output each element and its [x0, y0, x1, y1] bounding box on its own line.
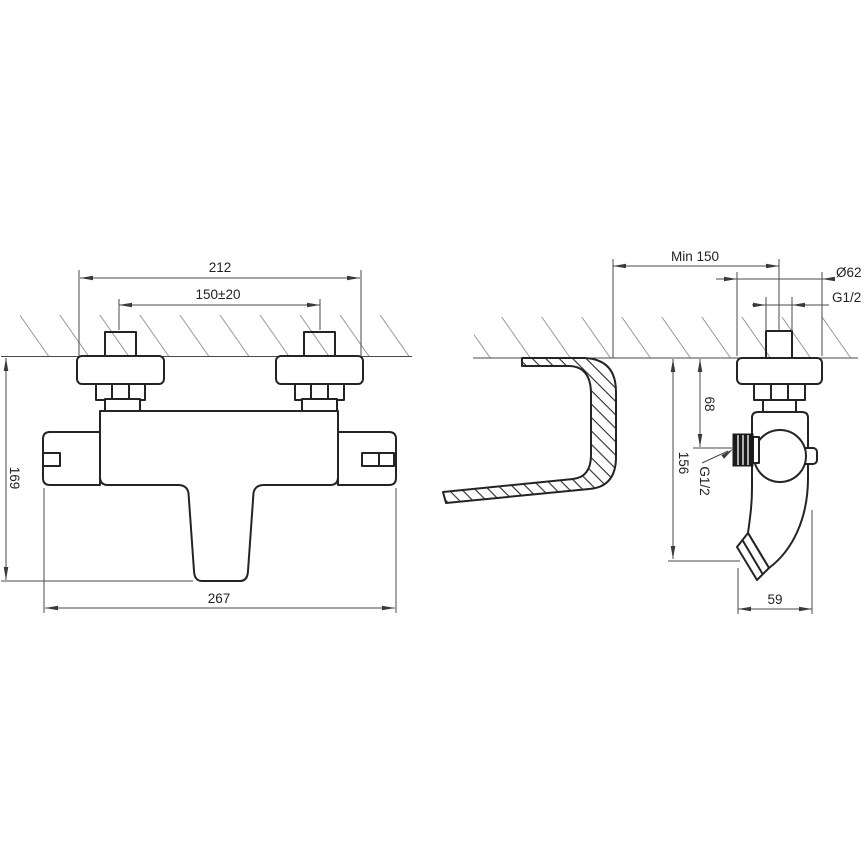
label-g12-outlet: G1/2 — [697, 449, 733, 496]
neck-side — [763, 400, 796, 412]
hex-nut-right — [295, 384, 344, 400]
handle-right — [338, 432, 396, 485]
dim-label-150-20: 150±20 — [196, 287, 241, 302]
hex-nut-left — [96, 384, 145, 400]
dim-label-212: 212 — [209, 260, 232, 275]
dim-label-g12-top: G1/2 — [832, 290, 861, 305]
rosette-left — [77, 356, 164, 384]
wall-hatch-right — [474, 317, 857, 358]
faucet-technical-drawing: 212 150±20 169 267 — [0, 0, 868, 868]
rosette-right — [276, 356, 363, 384]
neck-left — [105, 399, 140, 411]
dim-label-min-150: Min 150 — [671, 249, 719, 264]
drawing-canvas: 212 150±20 169 267 — [0, 0, 868, 868]
mixer-body-front — [100, 411, 338, 581]
shower-outlet-thread — [733, 434, 759, 466]
dim-label-68: 68 — [702, 396, 717, 411]
bathtub-rim-section — [443, 358, 616, 503]
dim-68: 68 — [693, 359, 734, 448]
rosette-side — [737, 358, 822, 384]
neck-right — [302, 399, 337, 411]
dim-label-156: 156 — [676, 452, 691, 475]
dim-label-267: 267 — [208, 591, 231, 606]
dim-label-169: 169 — [7, 467, 22, 490]
handle-left — [43, 432, 100, 485]
dim-label-g12-outlet: G1/2 — [697, 466, 712, 495]
dim-156: 156 — [668, 359, 740, 561]
dim-label-59: 59 — [767, 592, 782, 607]
dim-label-d62: Ø62 — [836, 265, 862, 280]
front-view: 212 150±20 169 267 — [1, 260, 412, 613]
handle-side — [754, 430, 806, 482]
side-view: Min 150 Ø62 G1/2 68 — [443, 249, 862, 614]
hex-nut-side — [754, 384, 805, 400]
